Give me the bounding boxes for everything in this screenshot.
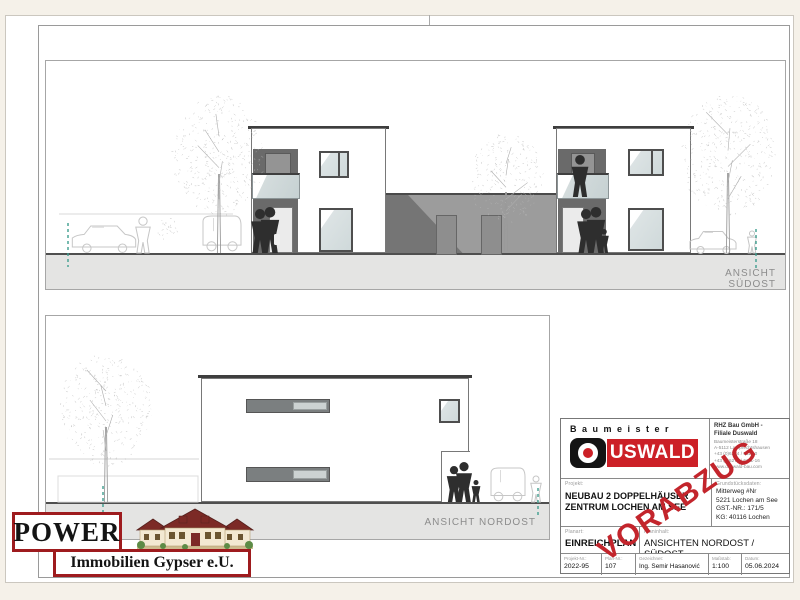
- field-label: Gezeichnet:: [639, 556, 663, 561]
- duswald-logo-o-icon: [570, 438, 606, 468]
- field-value: 107: [605, 563, 616, 570]
- connector-building: [386, 193, 556, 253]
- right-house-entrance-door: [562, 207, 584, 253]
- label-ansicht-suedost: ANSICHT SÜDOST: [676, 268, 776, 290]
- site-line: 5221 Lochen am See: [716, 497, 778, 506]
- site-line: Mitterweg #Nr: [716, 488, 778, 497]
- field-value: 2022-95: [564, 563, 589, 570]
- plan-type-label: Planart:: [565, 529, 584, 535]
- field-label: Datum:: [745, 556, 760, 561]
- elevation-suedost-panel: ANSICHT SÜDOST: [45, 60, 786, 290]
- facade-notch: [441, 451, 470, 502]
- field-value: 05.06.2024: [745, 563, 779, 570]
- duswald-logo-text: USWALD: [607, 439, 698, 467]
- left-house-balcony-glass: [252, 173, 300, 199]
- field-massstab: Maßstab: 1:100: [708, 554, 741, 575]
- left-house-entrance-door: [269, 207, 293, 253]
- project-line-1: NEUBAU 2 DOPPELHÄUSER: [565, 491, 689, 502]
- nordost-building: [201, 378, 469, 502]
- connector-door-2: [481, 215, 502, 255]
- upper-ribbon-inset: [293, 402, 327, 410]
- label-ansicht-nordost: ANSICHT NORDOST: [406, 517, 536, 528]
- company-name-1: RHZ Bau GmbH -: [714, 423, 789, 431]
- project-label: Projekt:: [565, 481, 584, 487]
- duswald-brand-cell: Baumeister USWALD: [561, 419, 709, 478]
- title-block-brand-row: Baumeister USWALD RHZ Bau GmbH - Filiale…: [561, 419, 789, 478]
- title-block-project-row: Projekt: NEUBAU 2 DOPPELHÄUSER ZENTRUM L…: [561, 478, 789, 526]
- field-projekt-nr: Projekt-Nr.: 2022-95: [561, 554, 601, 575]
- site-label: Grundstücksdaten:: [716, 481, 761, 487]
- field-datum: Datum: 05.06.2024: [741, 554, 791, 575]
- right-house-balcony-glass: [557, 173, 609, 199]
- connector-shadow: [386, 195, 556, 253]
- company-detail: www.duswald-bau.com: [714, 464, 789, 470]
- power-subtitle: Immobilien Gypser e.U.: [70, 554, 233, 572]
- field-label: Maßstab:: [712, 556, 731, 561]
- plan-content-label: Planinhalt:: [644, 529, 670, 535]
- duswald-logo: USWALD: [570, 438, 698, 468]
- lower-ribbon-inset: [293, 470, 327, 479]
- power-title: POWER: [14, 517, 121, 548]
- site-cell: Grundstücksdaten: Mitterweg #Nr 5221 Loc…: [711, 479, 791, 526]
- project-cell: Projekt: NEUBAU 2 DOPPELHÄUSER ZENTRUM L…: [561, 479, 711, 526]
- plan-type-cell: Planart: EINREICHPLAN: [561, 527, 639, 553]
- field-value: 1:100: [712, 563, 729, 570]
- plan-content-value: ANSICHTEN NORDOST / SÜDOST: [644, 538, 791, 553]
- title-block-plan-row: Planart: EINREICHPLAN Planinhalt: ANSICH…: [561, 526, 789, 553]
- power-title-box: POWER: [12, 512, 122, 552]
- site-line: KG: 40116 Lochen: [716, 514, 778, 523]
- field-gezeichnet: Gezeichnet: Ing. Semir Hasanović: [635, 554, 708, 575]
- field-label: Projekt-Nr.:: [564, 556, 587, 561]
- power-subtitle-box: Immobilien Gypser e.U.: [53, 549, 251, 577]
- company-name-2: Filiale Duswald: [714, 431, 789, 439]
- connector-door-1: [436, 215, 457, 255]
- right-house-lower-window: [628, 208, 664, 251]
- company-cell: RHZ Bau GmbH - Filiale Duswald Baumeiste…: [709, 419, 791, 478]
- ground-strip: [46, 253, 785, 290]
- baumeister-word: Baumeister: [570, 424, 674, 434]
- left-house-lower-window: [319, 208, 353, 252]
- power-immobilien-logo: POWER Immobilien Gypser e.U.: [10, 506, 258, 580]
- field-plan-nr: Plan-Nr.: 107: [601, 554, 635, 575]
- project-line-2: ZENTRUM LOCHEN AM SEE: [565, 502, 689, 513]
- field-label: Plan-Nr.:: [605, 556, 623, 561]
- title-block: Baumeister USWALD RHZ Bau GmbH - Filiale…: [560, 418, 790, 574]
- right-house-upper-window: [628, 149, 664, 176]
- field-value: Ing. Semir Hasanović: [639, 563, 700, 570]
- site-line: GST.-NR.: 171/5: [716, 505, 778, 514]
- plan-content-cell: Planinhalt: ANSICHTEN NORDOST / SÜDOST: [639, 527, 791, 553]
- title-block-fields-row: Projekt-Nr.: 2022-95 Plan-Nr.: 107 Gezei…: [561, 553, 789, 575]
- plan-type-value: EINREICHPLAN: [565, 538, 636, 549]
- left-house-upper-window: [319, 151, 349, 178]
- villa-illustration-icon: [135, 506, 255, 554]
- square-window: [439, 399, 460, 423]
